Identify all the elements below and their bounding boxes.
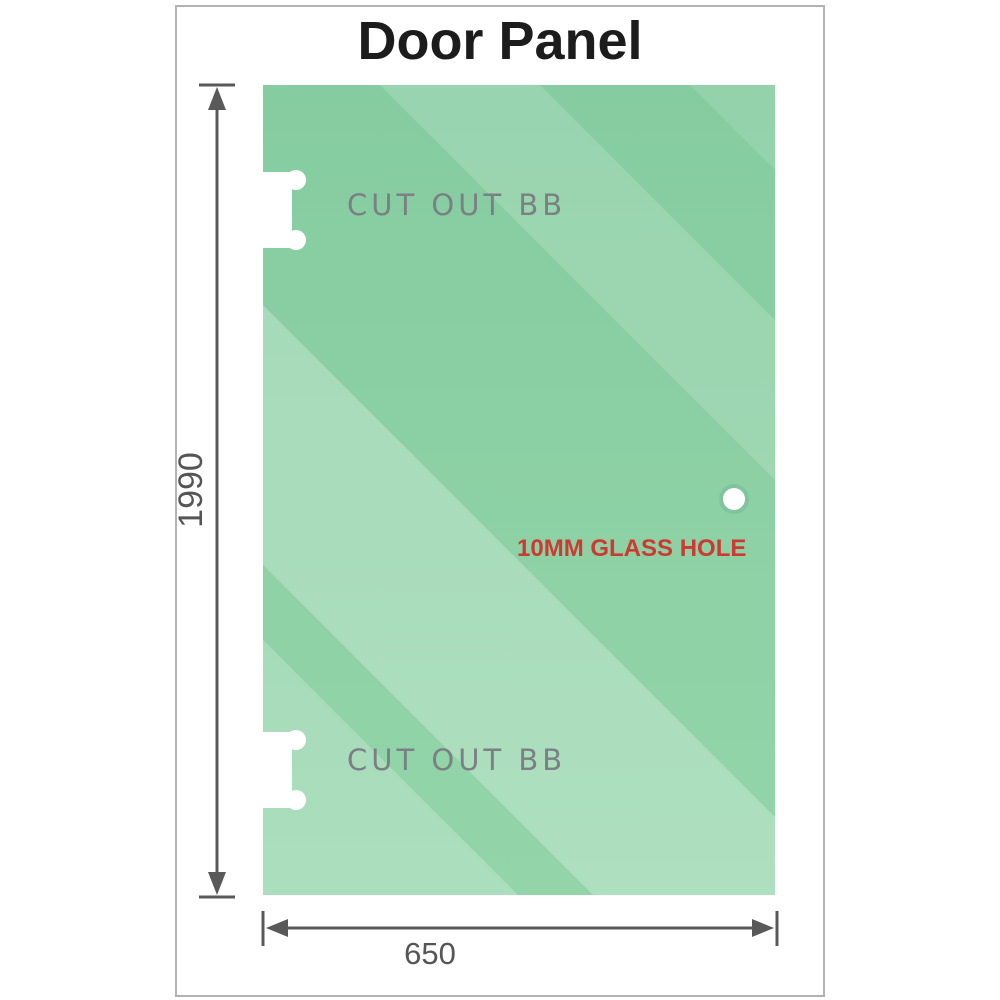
cutout-bottom-bump-lower bbox=[286, 790, 306, 810]
height-dimension-value: 1990 bbox=[171, 440, 211, 540]
glass-hole bbox=[719, 484, 749, 514]
height-dim-arrow-down bbox=[208, 872, 226, 895]
cutout-top-label: CUT OUT BB bbox=[347, 188, 566, 222]
glass-hole-label: 10MM GLASS HOLE bbox=[517, 535, 746, 563]
width-dim-arrow-left bbox=[266, 919, 288, 937]
door-panel-drawing: Door Panel bbox=[0, 0, 1000, 1000]
glass-hole-center bbox=[723, 488, 745, 510]
cutout-bottom-bump-upper bbox=[286, 730, 306, 750]
diagram-canvas bbox=[0, 0, 1000, 1000]
cutout-top-bump-lower bbox=[286, 230, 306, 250]
height-dim-arrow-up bbox=[208, 87, 226, 110]
width-dimension-line bbox=[263, 911, 777, 946]
cutout-bottom-label: CUT OUT BB bbox=[347, 743, 566, 777]
width-dimension-value: 650 bbox=[395, 936, 465, 972]
width-dim-arrow-right bbox=[752, 919, 774, 937]
cutout-top-bump-upper bbox=[286, 170, 306, 190]
